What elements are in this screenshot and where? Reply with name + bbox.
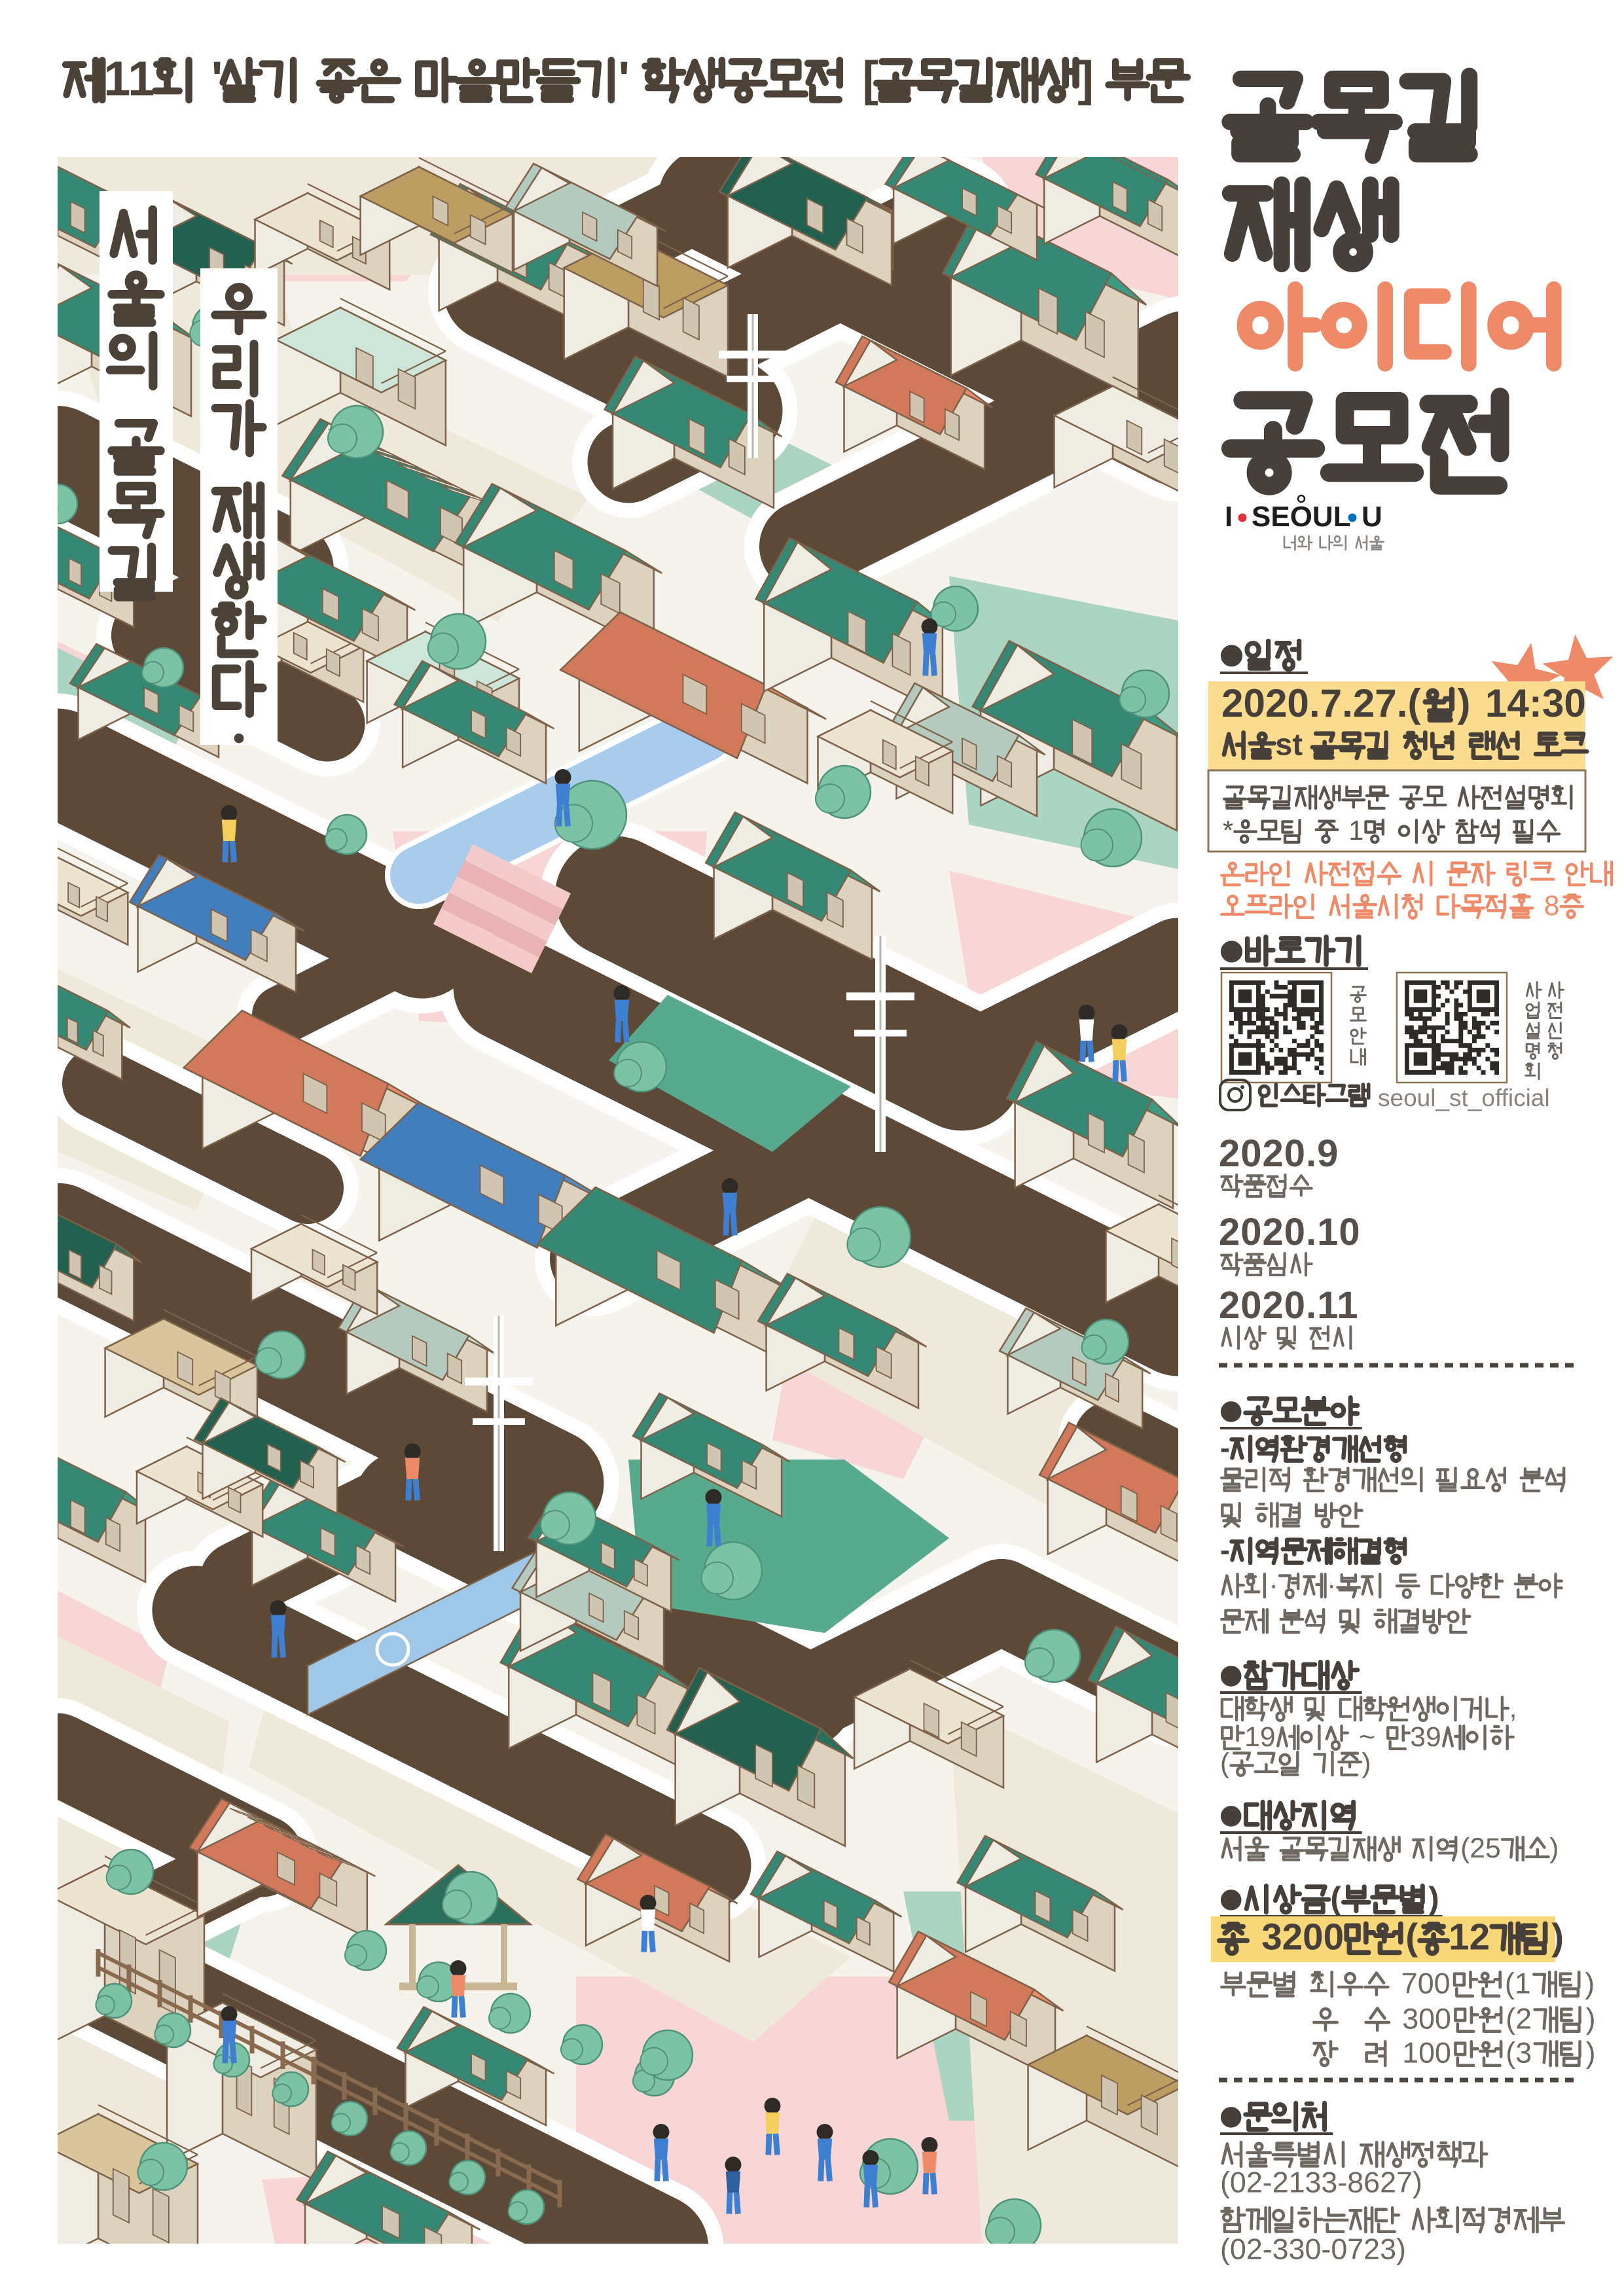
svg-text:': ' <box>211 51 223 105</box>
svg-text:·: · <box>1327 1570 1336 1601</box>
svg-text:11: 11 <box>103 51 154 105</box>
svg-text:): ) <box>1586 2037 1596 2070</box>
svg-text:': ' <box>619 51 630 105</box>
svg-text:-: - <box>1220 1534 1230 1567</box>
svg-text:(02-2133-8627): (02-2133-8627) <box>1220 2166 1422 2199</box>
svg-text:SEOUL: SEOUL <box>1252 501 1351 533</box>
svg-text:(1: (1 <box>1505 1967 1531 2000</box>
svg-text:(3: (3 <box>1506 2037 1532 2070</box>
svg-text:*: * <box>1223 816 1233 846</box>
svg-text:-: - <box>1220 1432 1230 1465</box>
svg-text:700: 700 <box>1401 1967 1451 2000</box>
svg-text:(2: (2 <box>1506 2003 1532 2036</box>
svg-text:(25: (25 <box>1460 1833 1501 1864</box>
svg-text:]: ] <box>1077 51 1094 105</box>
svg-text:): ) <box>1586 2003 1596 2036</box>
svg-text:[: [ <box>862 51 878 105</box>
svg-text:·: · <box>1269 1570 1278 1601</box>
svg-text:): ) <box>1585 1967 1595 2000</box>
svg-text:(: ( <box>1330 1880 1341 1916</box>
svg-text:2020.10: 2020.10 <box>1219 1211 1361 1253</box>
svg-text:): ) <box>1362 1748 1371 1779</box>
svg-text:(02-330-0723): (02-330-0723) <box>1220 2233 1406 2266</box>
svg-text:14:30: 14:30 <box>1485 681 1586 725</box>
svg-text:,: , <box>1509 1693 1517 1724</box>
svg-text:(: ( <box>1405 1916 1418 1957</box>
svg-text:seoul_st_official: seoul_st_official <box>1378 1085 1550 1111</box>
svg-text:1: 1 <box>1348 816 1363 846</box>
svg-text:19: 19 <box>1244 1721 1275 1753</box>
svg-text:I: I <box>1225 501 1233 533</box>
svg-text:300: 300 <box>1402 2003 1451 2036</box>
svg-text:2020.9: 2020.9 <box>1219 1132 1339 1175</box>
svg-text:st: st <box>1275 726 1303 761</box>
svg-text:): ) <box>1428 1880 1439 1916</box>
svg-text:): ) <box>1549 1833 1559 1864</box>
svg-text:100: 100 <box>1402 2037 1451 2070</box>
svg-text:8: 8 <box>1544 890 1560 922</box>
svg-text:2020.7.27.(: 2020.7.27.( <box>1221 681 1421 725</box>
svg-text:39: 39 <box>1410 1721 1441 1753</box>
svg-text:2020.11: 2020.11 <box>1219 1284 1358 1327</box>
svg-text:3200: 3200 <box>1261 1916 1344 1957</box>
svg-text:): ) <box>1551 1916 1564 1957</box>
svg-text:(: ( <box>1220 1748 1229 1779</box>
svg-text:U: U <box>1362 501 1382 533</box>
svg-text:): ) <box>1457 681 1470 725</box>
svg-text:12: 12 <box>1449 1916 1490 1957</box>
